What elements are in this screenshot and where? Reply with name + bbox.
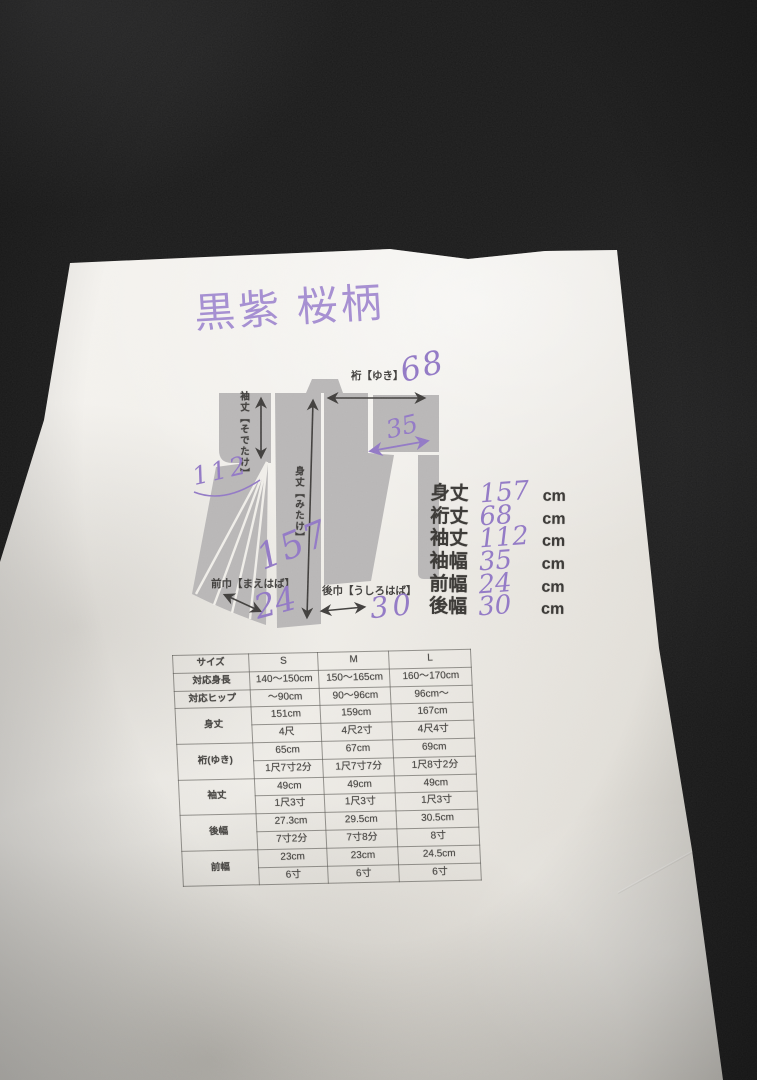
measurement-unit: cm: [543, 488, 566, 506]
paper-crease: [618, 846, 703, 894]
table-cell: サイズ: [173, 654, 249, 673]
yuki-label: 裄【ゆき】: [350, 369, 404, 382]
table-cell: 159cm: [320, 704, 392, 723]
table-cell: 6寸: [258, 866, 329, 885]
collar-shape: [306, 379, 343, 393]
ushirohaba-arrow: [322, 607, 364, 611]
table-cell: 65cm: [252, 741, 323, 760]
table-cell: 6寸: [328, 864, 400, 883]
table-cell: 23cm: [327, 847, 399, 866]
table-cell: 96cm～: [390, 685, 473, 704]
table-cell: 67cm: [322, 740, 394, 759]
measurement-label: 後幅: [429, 591, 476, 619]
table-cell: 1尺7寸2分: [253, 759, 324, 778]
table-cell: 4尺4寸: [392, 720, 475, 739]
table-cell: 前幅: [182, 850, 259, 887]
handwritten-ushirohaba-value: 30: [369, 590, 417, 624]
table-cell: 6寸: [399, 863, 482, 882]
table-cell: M: [318, 651, 390, 670]
table-cell: 23cm: [257, 848, 328, 867]
table-cell: 袖丈: [178, 778, 255, 815]
table-cell: 対応ヒップ: [174, 689, 250, 708]
table-cell: 27.3cm: [256, 812, 327, 831]
table-cell: 151cm: [251, 706, 322, 725]
table-cell: 90～96cm: [320, 687, 392, 706]
measurement-value-handwritten: 30: [477, 588, 540, 622]
table-cell: 167cm: [391, 703, 474, 722]
table-cell: 1尺3寸: [325, 793, 397, 812]
table-cell: 身丈: [175, 707, 252, 744]
table-cell: 7寸8分: [326, 829, 398, 848]
table-cell: 1尺7寸7分: [323, 758, 395, 777]
table-cell: 49cm: [254, 777, 325, 796]
table-cell: 30.5cm: [396, 809, 479, 828]
table-cell: 8寸: [397, 827, 480, 846]
table-cell: ～90cm: [250, 688, 321, 707]
table-cell: 4尺: [252, 724, 323, 743]
table-cell: 29.5cm: [326, 811, 398, 830]
measurement-unit: cm: [542, 533, 565, 551]
measurement-list: 身丈 157 cm 裄丈 68 cm 袖丈 112 cm 袖幅 35 cm 前幅: [429, 476, 566, 614]
handwritten-maehaba-value: 24: [250, 581, 299, 624]
table-cell: 1尺3寸: [395, 792, 478, 811]
table-cell: 4尺2寸: [321, 722, 393, 741]
table-cell: L: [389, 649, 472, 668]
table-cell: 裄(ゆき): [177, 743, 254, 780]
table-cell: 69cm: [393, 738, 476, 757]
table-cell: 150～165cm: [319, 669, 391, 688]
table-cell: 49cm: [324, 775, 396, 794]
handwritten-title: 黒紫 桜柄: [192, 268, 386, 340]
table-cell: 1尺8寸2分: [394, 756, 477, 775]
table-cell: 対応身長: [173, 672, 249, 691]
table-cell: 1尺3寸: [255, 795, 326, 814]
handwritten-yuki-value: 68: [397, 345, 448, 387]
measurement-unit: cm: [541, 601, 564, 619]
measurement-unit: cm: [542, 556, 565, 574]
measurement-unit: cm: [542, 510, 565, 528]
table-cell: S: [248, 652, 319, 671]
table-cell: 160～170cm: [390, 667, 473, 686]
table-cell: 24.5cm: [398, 845, 481, 864]
measurement-unit: cm: [541, 578, 564, 596]
table-cell: 49cm: [395, 774, 478, 793]
measurement-row: 身丈 157 cm: [431, 476, 566, 501]
size-table: サイズ S M L 対応身長 140～150cm 150～165cm 160～1…: [172, 649, 482, 887]
table-cell: 140～150cm: [249, 670, 320, 689]
table-cell: 7寸2分: [257, 830, 328, 849]
table-cell: 後幅: [180, 814, 257, 851]
handwritten-sodehaba-value: 35: [383, 411, 420, 443]
photo-scene: 黒紫 桜柄: [0, 0, 757, 1080]
